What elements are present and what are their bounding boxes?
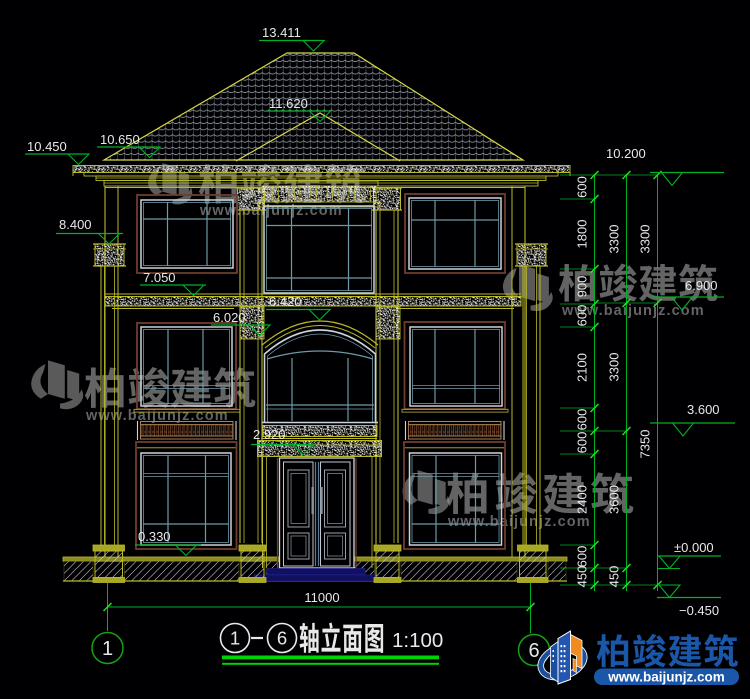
svg-text:13.411: 13.411 bbox=[262, 25, 301, 40]
svg-text:1:100: 1:100 bbox=[392, 629, 443, 652]
svg-text:6.420: 6.420 bbox=[269, 294, 302, 309]
svg-text:11.620: 11.620 bbox=[269, 96, 308, 111]
svg-text:2100: 2100 bbox=[575, 353, 590, 382]
svg-text:450: 450 bbox=[607, 566, 622, 588]
svg-text:6.900: 6.900 bbox=[685, 278, 718, 293]
svg-text:600: 600 bbox=[575, 546, 590, 568]
svg-text:−0.450: −0.450 bbox=[679, 603, 719, 618]
svg-text:600: 600 bbox=[575, 432, 590, 454]
svg-text:7350: 7350 bbox=[638, 430, 653, 459]
svg-text:900: 900 bbox=[575, 276, 590, 298]
svg-text:8.400: 8.400 bbox=[59, 217, 92, 232]
svg-text:600: 600 bbox=[575, 409, 590, 431]
svg-text:2400: 2400 bbox=[575, 485, 590, 514]
svg-text:3300: 3300 bbox=[607, 225, 622, 254]
svg-text:6.020: 6.020 bbox=[213, 310, 246, 325]
svg-text:3600: 3600 bbox=[607, 485, 622, 514]
svg-text:1: 1 bbox=[102, 638, 113, 660]
svg-text:2.920: 2.920 bbox=[253, 427, 286, 442]
svg-text:1: 1 bbox=[230, 628, 240, 649]
svg-text:0.330: 0.330 bbox=[138, 529, 171, 544]
svg-text:7.050: 7.050 bbox=[143, 270, 176, 285]
svg-text:3300: 3300 bbox=[607, 353, 622, 382]
svg-text:600: 600 bbox=[575, 305, 590, 327]
svg-text:6: 6 bbox=[528, 640, 539, 662]
svg-text:±0.000: ±0.000 bbox=[674, 540, 714, 555]
svg-text:3300: 3300 bbox=[638, 225, 653, 254]
svg-text:11000: 11000 bbox=[304, 590, 339, 605]
svg-text:www.baijunjz.com: www.baijunjz.com bbox=[447, 514, 591, 530]
svg-text:10.200: 10.200 bbox=[606, 146, 646, 161]
svg-text:10.450: 10.450 bbox=[27, 139, 67, 154]
svg-text:1800: 1800 bbox=[575, 220, 590, 249]
svg-text:600: 600 bbox=[575, 176, 590, 198]
svg-text:3.600: 3.600 bbox=[687, 402, 720, 417]
svg-text:450: 450 bbox=[575, 566, 590, 588]
svg-text:10.650: 10.650 bbox=[100, 132, 140, 147]
svg-text:6: 6 bbox=[277, 628, 287, 649]
svg-text:www.baijunjz.com: www.baijunjz.com bbox=[607, 670, 725, 685]
